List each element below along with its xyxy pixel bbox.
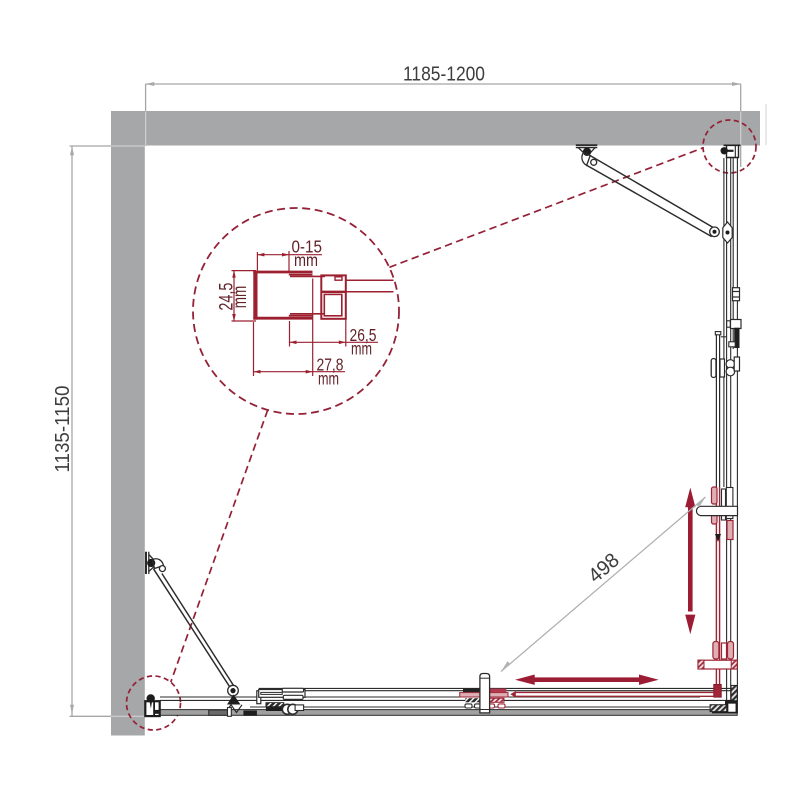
svg-text:mm: mm (230, 286, 251, 309)
svg-text:mm: mm (318, 368, 339, 388)
svg-text:mm: mm (351, 339, 372, 359)
svg-text:1135-1150: 1135-1150 (51, 386, 74, 473)
svg-text:mm: mm (294, 250, 318, 270)
svg-text:1185-1200: 1185-1200 (403, 62, 485, 85)
